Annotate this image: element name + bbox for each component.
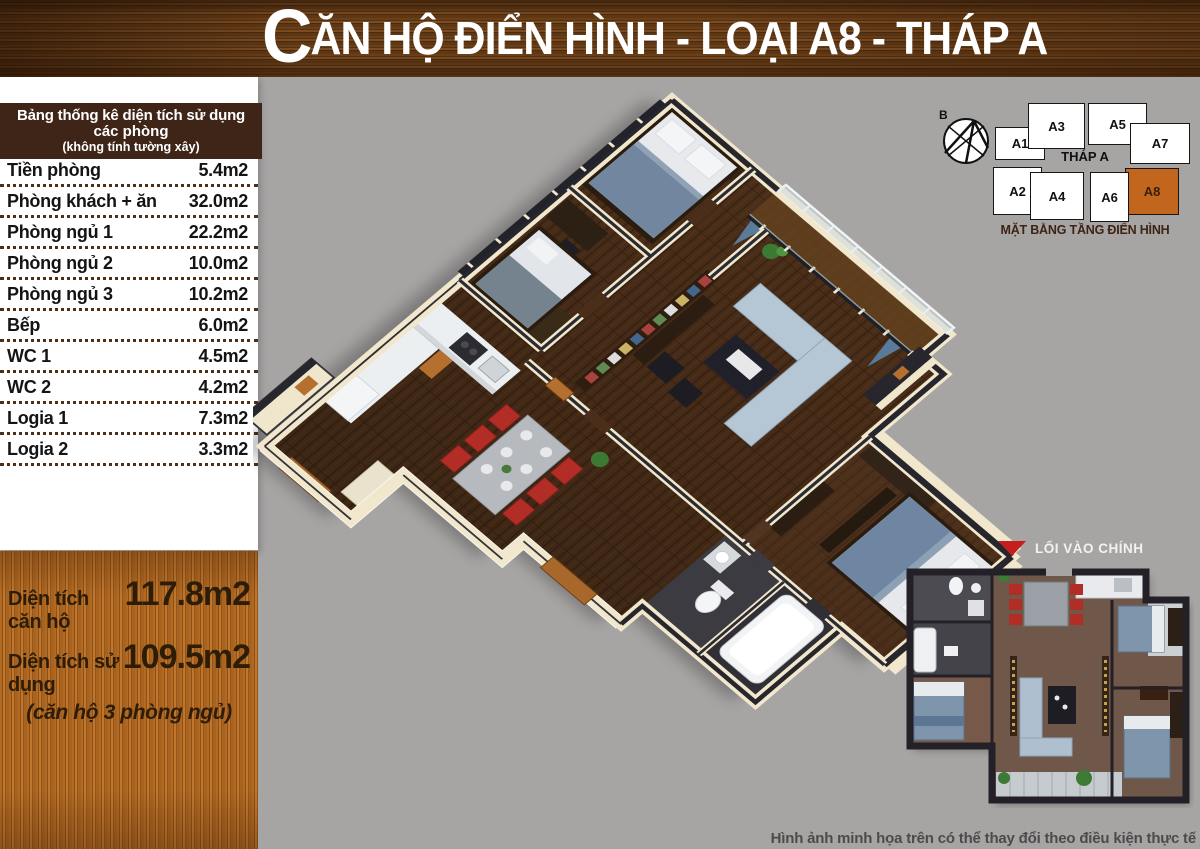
- room-label: Phòng ngủ 1: [7, 222, 113, 243]
- room-label: Logia 2: [7, 439, 68, 460]
- entrance-marker: LỐI VÀO CHÍNH: [998, 541, 1144, 556]
- tower-name: THÁP A: [1050, 149, 1120, 164]
- compass-north-label: B: [939, 108, 948, 122]
- room-area-value: 7.3m2: [198, 408, 248, 429]
- tower-unit-a3: A3: [1028, 103, 1085, 149]
- page-title-text: ĂN HỘ ĐIỂN HÌNH - LOẠI A8 - THÁP A: [311, 15, 1048, 61]
- area-table-panel: Bảng thống kê diện tích sử dụng các phòn…: [0, 77, 258, 550]
- summary-value: 109.5m2: [123, 638, 250, 677]
- room-area-value: 4.5m2: [198, 346, 248, 367]
- room-label: WC 2: [7, 377, 51, 398]
- tower-unit-a7: A7: [1130, 123, 1190, 164]
- summary-note: (căn hộ 3 phòng ngủ): [0, 701, 258, 725]
- summary-panel: Diện tích căn hộ117.8m2Diện tích sử dụng…: [0, 551, 258, 849]
- room-area-value: 22.2m2: [189, 222, 248, 243]
- tower-unit-a4: A4: [1030, 172, 1084, 220]
- page-title: C ĂN HỘ ĐIỂN HÌNH - LOẠI A8 - THÁP A: [262, 2, 1047, 70]
- tower-unit-a8: A8: [1125, 168, 1179, 215]
- tower-key-plan: B A1A3A5A7A2A4A8A6 THÁP A MẶT BẰNG TẦNG …: [930, 95, 1200, 255]
- summary-rows: Diện tích căn hộ117.8m2Diện tích sử dụng…: [0, 551, 258, 697]
- area-table-header: Bảng thống kê diện tích sử dụng các phòn…: [0, 103, 262, 159]
- area-table-row: Phòng ngủ 310.2m2: [0, 280, 258, 311]
- room-label: Phòng khách + ăn: [7, 191, 157, 212]
- area-table-row: Logia 23.3m2: [0, 435, 258, 466]
- area-table-header-note: (không tính tường xây): [2, 140, 260, 154]
- area-table-row: Tiền phòng5.4m2: [0, 156, 258, 187]
- mini-plan: [910, 567, 1186, 800]
- area-table-row: Bếp6.0m2: [0, 311, 258, 342]
- tower-unit-a6: A6: [1090, 172, 1129, 222]
- room-label: Tiền phòng: [7, 160, 101, 181]
- room-label: Bếp: [7, 315, 40, 336]
- room-label: Logia 1: [7, 408, 68, 429]
- disclaimer-text: Hình ảnh minh họa trên có thể thay đổi t…: [771, 830, 1196, 847]
- floor-plan-2d: [906, 566, 1194, 808]
- area-table-header-line2: các phòng: [2, 124, 260, 140]
- page-title-initial: C: [262, 2, 311, 70]
- compass-icon: B: [933, 103, 997, 169]
- area-table-header-line1: Bảng thống kê diện tích sử dụng: [2, 107, 260, 124]
- room-area-value: 6.0m2: [198, 315, 248, 336]
- room-area-value: 10.2m2: [189, 284, 248, 305]
- entrance-arrow-icon: [998, 541, 1026, 556]
- entrance-label: LỐI VÀO CHÍNH: [1035, 541, 1144, 556]
- mini-plan-entrance-gap: [1046, 567, 1072, 576]
- summary-label: Diện tích sử dụng: [8, 651, 123, 697]
- area-table-row: WC 24.2m2: [0, 373, 258, 404]
- area-table-rows: Tiền phòng5.4m2Phòng khách + ăn32.0m2Phò…: [0, 156, 258, 466]
- room-area-value: 32.0m2: [189, 191, 248, 212]
- poster: C ĂN HỘ ĐIỂN HÌNH - LOẠI A8 - THÁP A Bản…: [0, 0, 1200, 849]
- tower-caption: MẶT BẰNG TẦNG ĐIỂN HÌNH: [975, 223, 1195, 237]
- room-label: WC 1: [7, 346, 51, 367]
- summary-value: 117.8m2: [125, 575, 250, 614]
- room-area-value: 10.0m2: [189, 253, 248, 274]
- area-table-row: Phòng ngủ 210.0m2: [0, 249, 258, 280]
- room-area-value: 3.3m2: [198, 439, 248, 460]
- area-table-row: WC 14.5m2: [0, 342, 258, 373]
- area-table-row: Logia 17.3m2: [0, 404, 258, 435]
- summary-row: Diện tích căn hộ117.8m2: [8, 575, 250, 634]
- summary-label: Diện tích căn hộ: [8, 588, 125, 634]
- room-area-value: 5.4m2: [198, 160, 248, 181]
- room-area-value: 4.2m2: [198, 377, 248, 398]
- area-table-row: Phòng khách + ăn32.0m2: [0, 187, 258, 218]
- summary-row: Diện tích sử dụng109.5m2: [8, 638, 250, 697]
- room-label: Phòng ngủ 3: [7, 284, 113, 305]
- area-table-row: Phòng ngủ 122.2m2: [0, 218, 258, 249]
- room-label: Phòng ngủ 2: [7, 253, 113, 274]
- title-banner: C ĂN HỘ ĐIỂN HÌNH - LOẠI A8 - THÁP A: [0, 0, 1200, 77]
